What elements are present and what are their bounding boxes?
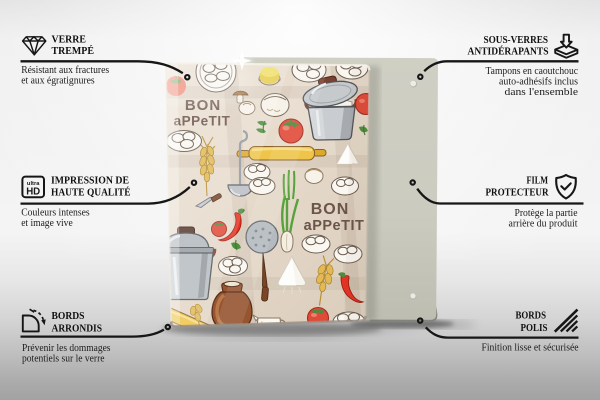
svg-text:BORDS: BORDS xyxy=(52,311,85,322)
svg-text:HD: HD xyxy=(26,187,40,198)
svg-text:SOUS-VERRES: SOUS-VERRES xyxy=(484,35,549,46)
svg-text:ARRONDIS: ARRONDIS xyxy=(52,323,103,334)
svg-text:FILM: FILM xyxy=(527,175,549,186)
svg-text:HAUTE QUALITÉ: HAUTE QUALITÉ xyxy=(51,187,131,199)
svg-text:Prévenir les dommages: Prévenir les dommages xyxy=(22,343,111,354)
svg-text:TREMPÉ: TREMPÉ xyxy=(52,45,95,57)
svg-text:Tampons en caoutchouc: Tampons en caoutchouc xyxy=(486,66,579,77)
svg-text:Protège la partie: Protège la partie xyxy=(515,208,579,219)
svg-text:et image vive: et image vive xyxy=(21,218,73,229)
svg-text:Couleurs intenses: Couleurs intenses xyxy=(21,207,90,218)
svg-text:IMPRESSION DE: IMPRESSION DE xyxy=(51,175,129,186)
svg-text:Finition lisse et sécurisée: Finition lisse et sécurisée xyxy=(482,342,580,353)
svg-text:BORDS: BORDS xyxy=(516,311,547,322)
svg-text:Résistant aux fractures: Résistant aux fractures xyxy=(21,65,109,76)
svg-text:BON: BON xyxy=(311,201,350,218)
svg-text:PROTECTEUR: PROTECTEUR xyxy=(486,188,550,199)
svg-text:VERRE: VERRE xyxy=(52,34,87,45)
svg-text:et aux égratignures: et aux égratignures xyxy=(21,75,95,86)
svg-text:dans l'ensemble: dans l'ensemble xyxy=(505,86,579,98)
svg-text:ANTIDÉRAPANTS: ANTIDÉRAPANTS xyxy=(468,46,549,58)
svg-text:potentiels sur le verre: potentiels sur le verre xyxy=(22,354,105,365)
svg-text:arrière du produit: arrière du produit xyxy=(509,219,578,230)
svg-text:POLIS: POLIS xyxy=(521,323,548,334)
